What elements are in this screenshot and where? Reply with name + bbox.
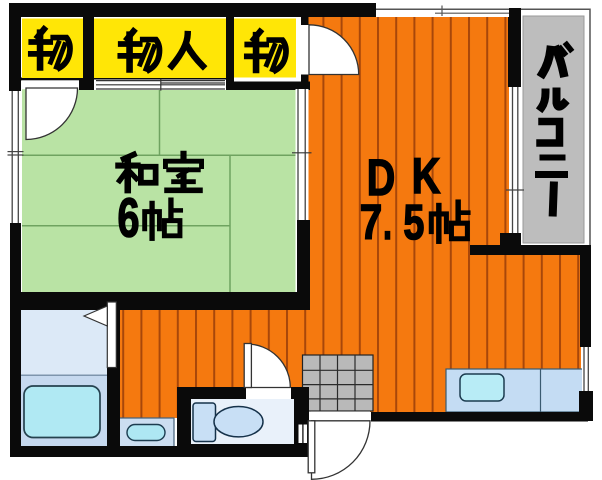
svg-text:6: 6 bbox=[118, 187, 140, 249]
svg-text:.: . bbox=[383, 196, 392, 250]
svg-text:7: 7 bbox=[360, 196, 383, 250]
svg-text:5: 5 bbox=[403, 196, 424, 250]
